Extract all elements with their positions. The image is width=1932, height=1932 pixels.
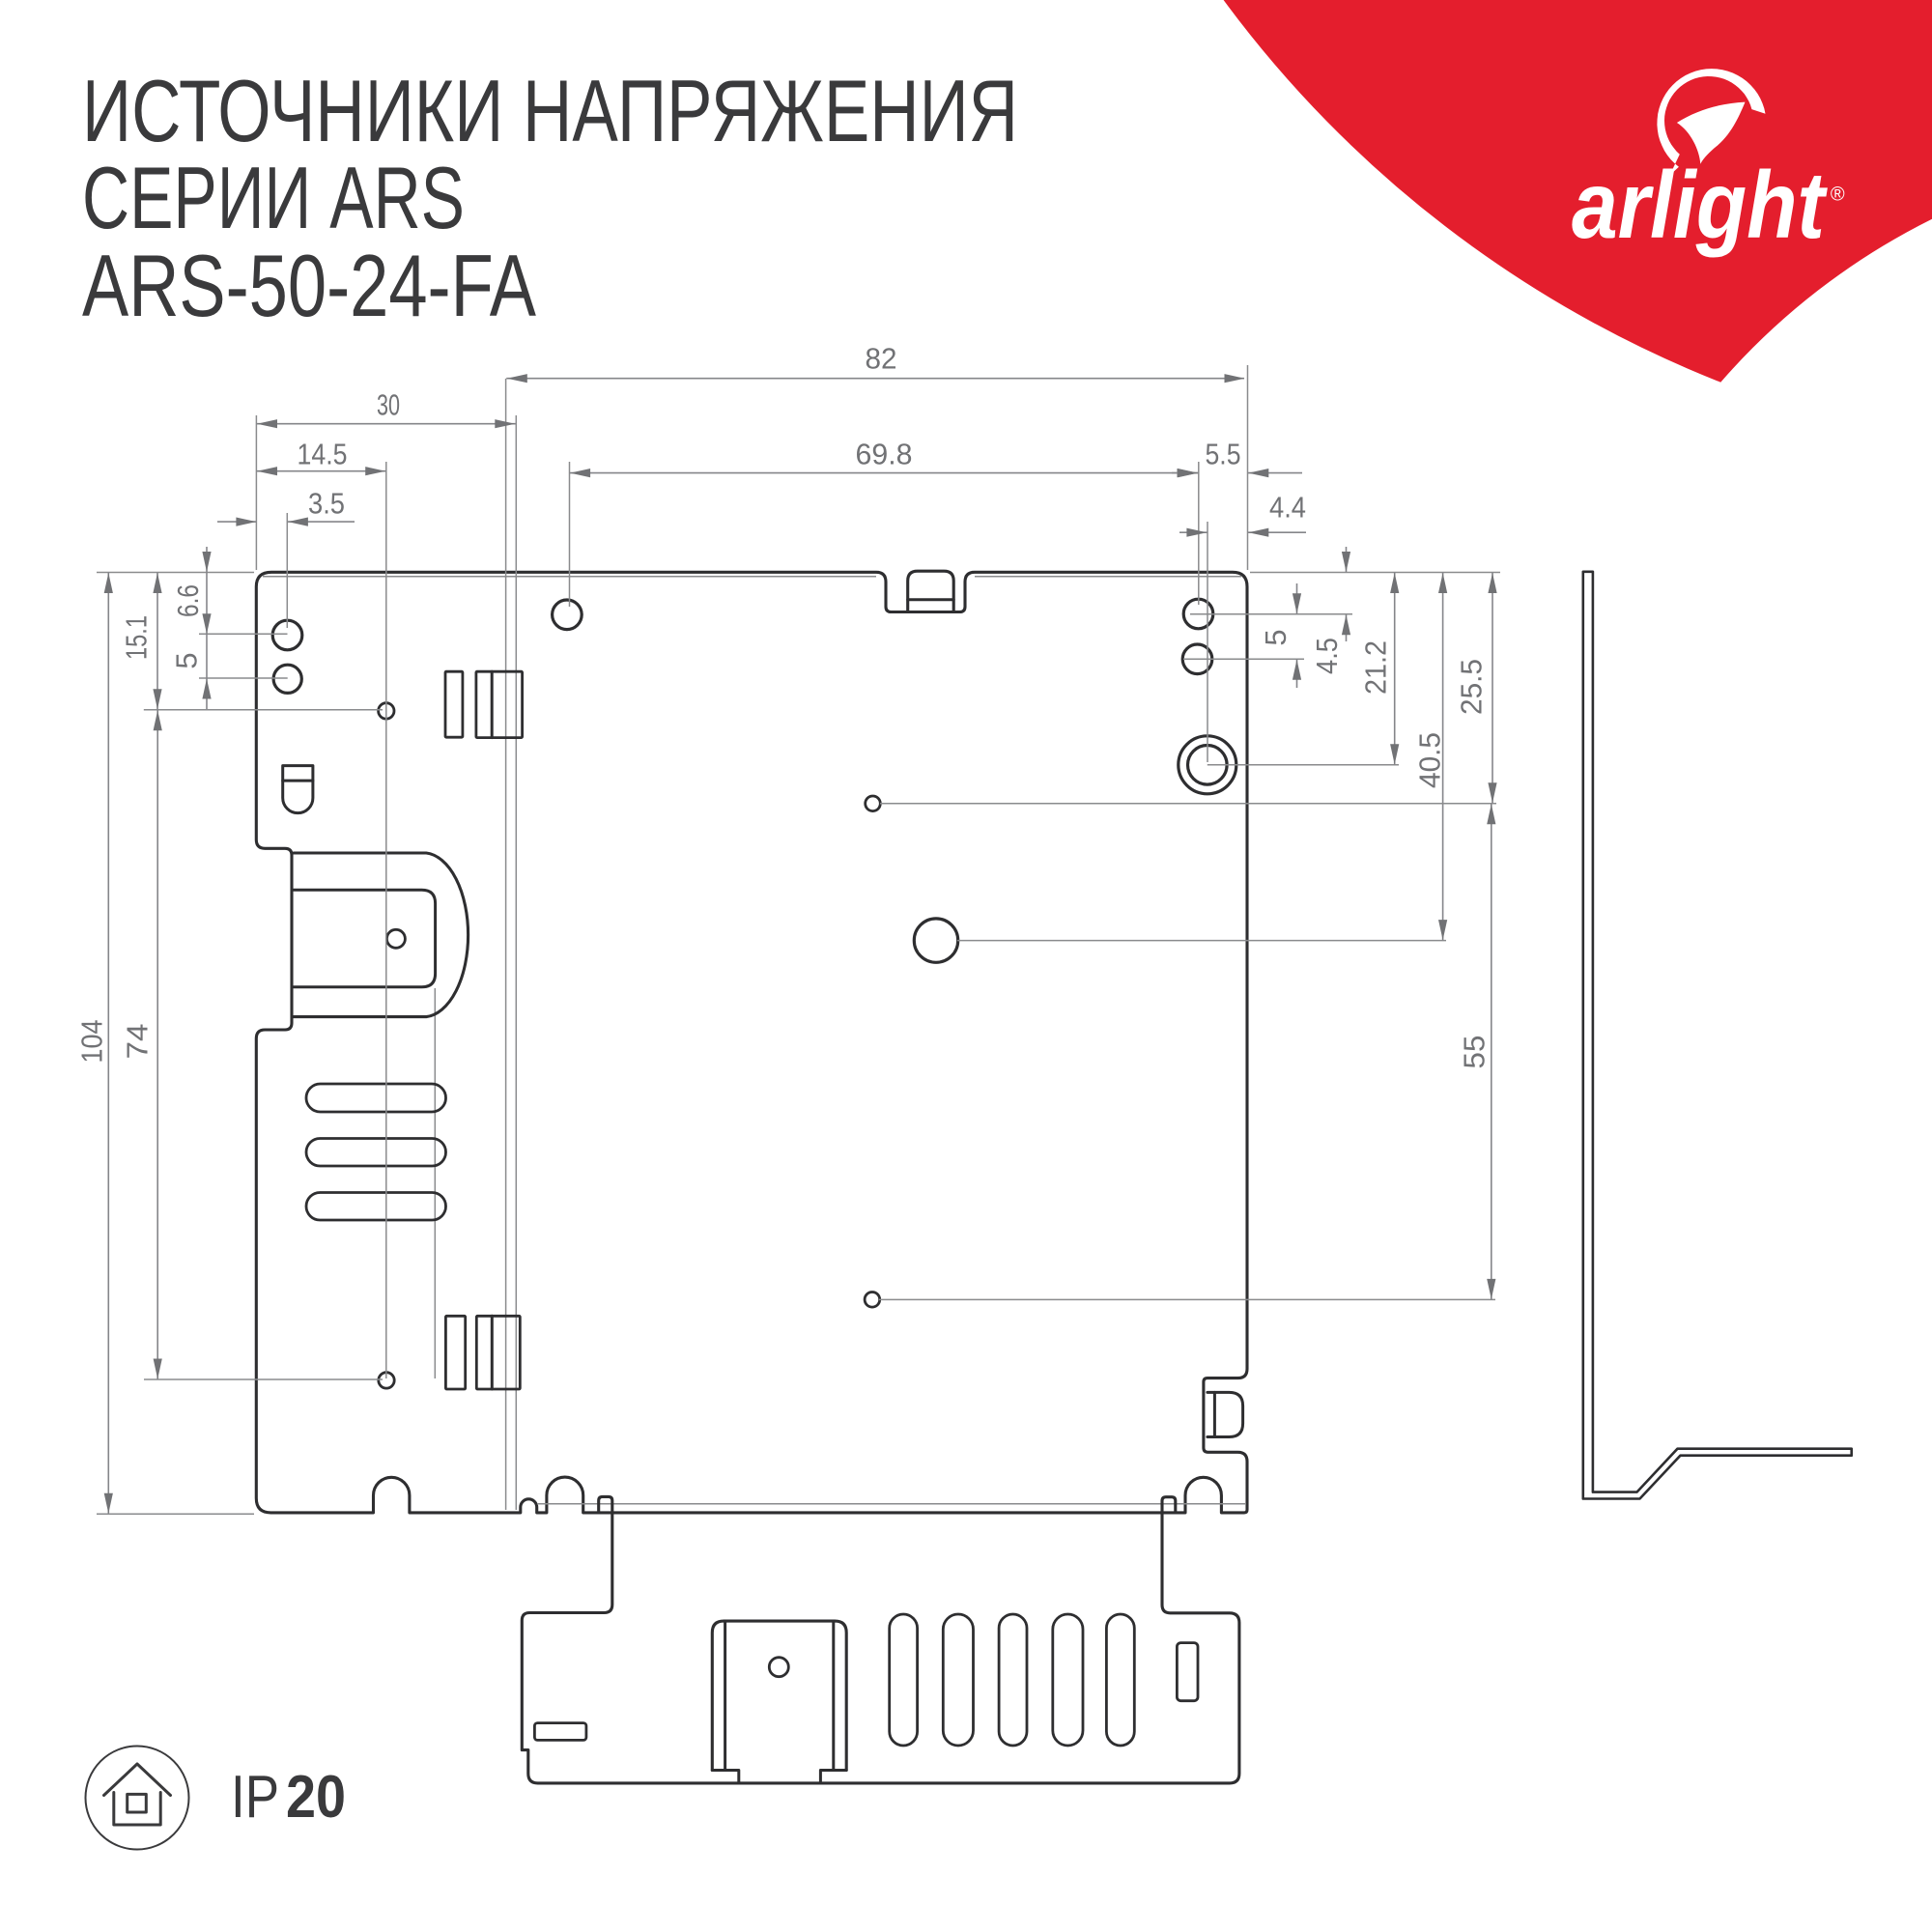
svg-text:40.5: 40.5	[1413, 732, 1447, 788]
svg-text:15.1: 15.1	[120, 615, 154, 660]
svg-text:arlight: arlight	[1572, 152, 1828, 258]
svg-text:4.4: 4.4	[1269, 491, 1306, 525]
svg-text:69.8: 69.8	[856, 438, 913, 471]
svg-text:30: 30	[377, 388, 400, 422]
svg-text:4.5: 4.5	[1310, 638, 1344, 674]
svg-text:IP: IP	[231, 1764, 279, 1831]
svg-text:104: 104	[75, 1020, 109, 1064]
svg-text:82: 82	[866, 342, 897, 376]
svg-text:5.5: 5.5	[1206, 438, 1241, 471]
svg-text:СЕРИИ ARS: СЕРИИ ARS	[82, 150, 465, 247]
svg-text:5: 5	[1259, 629, 1293, 645]
svg-text:21.2: 21.2	[1359, 640, 1393, 695]
svg-text:ARS-50-24-FA: ARS-50-24-FA	[82, 238, 536, 335]
svg-text:6.6: 6.6	[171, 584, 205, 617]
svg-text:20: 20	[286, 1764, 346, 1831]
svg-text:25.5: 25.5	[1455, 659, 1489, 715]
svg-text:14.5: 14.5	[298, 438, 348, 471]
svg-text:74: 74	[121, 1024, 155, 1060]
svg-text:ИСТОЧНИКИ НАПРЯЖЕНИЯ: ИСТОЧНИКИ НАПРЯЖЕНИЯ	[82, 63, 1018, 160]
svg-text:3.5: 3.5	[308, 487, 345, 521]
svg-text:®: ®	[1831, 185, 1845, 206]
svg-text:5: 5	[170, 652, 204, 668]
svg-text:55: 55	[1458, 1036, 1492, 1069]
